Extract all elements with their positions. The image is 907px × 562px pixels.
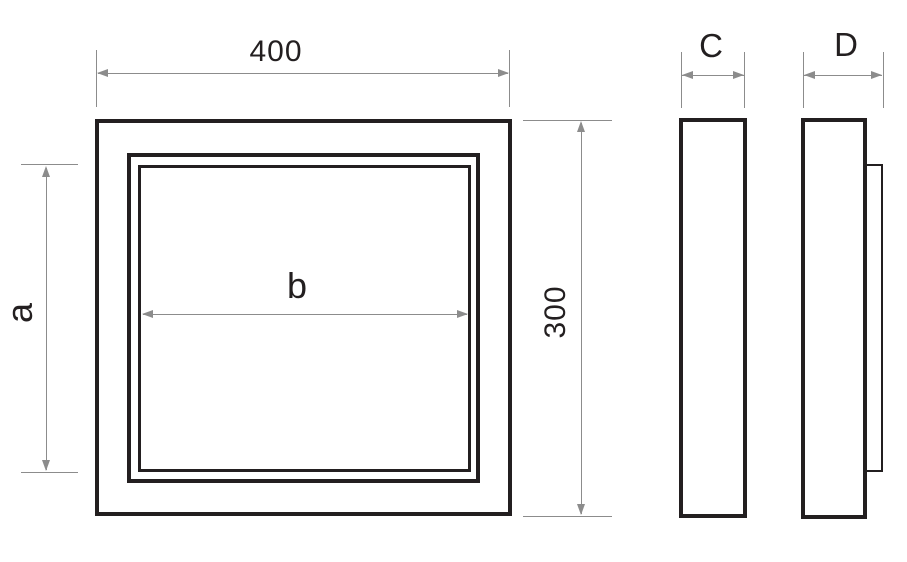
dim-a-arrow-down-icon: [42, 460, 50, 471]
dim-a-ext-line-bottom: [21, 472, 78, 473]
dim-b-arrow-left-icon: [142, 310, 153, 318]
dim-400-label: 400: [216, 36, 336, 68]
dim-d-ext-line-right: [883, 52, 884, 108]
dim-400-ext-line-left: [96, 50, 97, 107]
dim-d-label: D: [816, 28, 876, 62]
dim-c-ext-line-right: [744, 52, 745, 108]
dim-400-ext-line-right: [509, 50, 510, 107]
dim-a-arrow-up-icon: [42, 166, 50, 177]
dim-a-line: [46, 168, 47, 470]
dim-c-arrow-right-icon: [733, 71, 744, 79]
dim-300-ext-line-top: [523, 120, 612, 121]
side-view-d-body: [801, 118, 867, 519]
dim-d-ext-line-left: [803, 52, 804, 108]
dim-300-line: [581, 123, 582, 514]
dim-400-arrow-left-icon: [97, 69, 108, 77]
dim-b-line: [143, 314, 467, 315]
technical-drawing: 400 a b 300 C D: [0, 0, 907, 562]
side-view-c-body: [679, 118, 747, 518]
dim-300-arrow-up-icon: [577, 121, 585, 132]
dim-b-label: b: [237, 267, 357, 305]
dim-c-arrow-left-icon: [682, 71, 693, 79]
front-view-door-inner-edge: [138, 165, 471, 472]
dim-a-ext-line-top: [21, 164, 78, 165]
dim-400-arrow-right-icon: [498, 69, 509, 77]
dim-d-arrow-right-icon: [871, 71, 882, 79]
dim-d-arrow-left-icon: [804, 71, 815, 79]
dim-a-label: a: [1, 303, 39, 323]
dim-300-ext-line-bottom: [523, 516, 612, 517]
dim-300-arrow-down-icon: [577, 504, 585, 515]
dim-c-label: C: [681, 29, 741, 63]
dim-400-line: [98, 73, 508, 74]
dim-b-arrow-right-icon: [457, 310, 468, 318]
dim-300-label: 300: [540, 285, 572, 338]
